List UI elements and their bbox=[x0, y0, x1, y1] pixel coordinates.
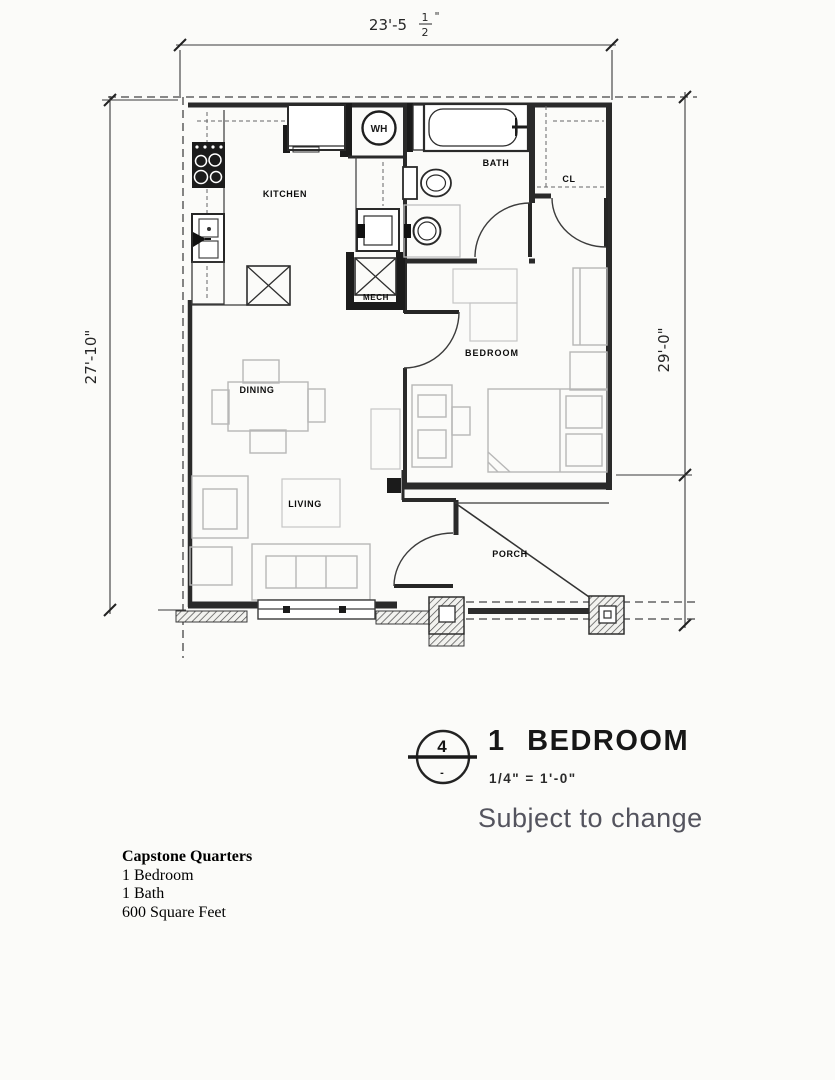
side-table bbox=[371, 409, 400, 469]
toilet bbox=[403, 167, 451, 199]
summary-block: Capstone Quarters 1 Bedroom 1 Bath 600 S… bbox=[122, 848, 252, 921]
room-label-living: LIVING bbox=[288, 499, 322, 509]
summary-line: 600 Square Feet bbox=[122, 904, 227, 921]
plan-title: 1 BEDROOM bbox=[488, 725, 689, 757]
dim-right-text: 29'-0" bbox=[655, 327, 673, 372]
dimension-left: 27'-10" bbox=[82, 94, 186, 616]
living: LIVING bbox=[190, 409, 453, 619]
bath-vanity bbox=[404, 205, 460, 257]
bathtub bbox=[424, 104, 528, 151]
porch-post bbox=[589, 596, 624, 634]
washer bbox=[357, 209, 399, 251]
stove bbox=[192, 142, 225, 188]
dining-chair bbox=[243, 360, 279, 383]
dining-chair bbox=[308, 389, 325, 422]
utility-niche: WH bbox=[357, 112, 399, 252]
dining: DINING bbox=[212, 360, 325, 453]
kitchen-sink bbox=[192, 214, 224, 262]
bedroom-nightstand bbox=[570, 352, 607, 390]
summary-line: 1 Bath bbox=[122, 885, 164, 902]
refrigerator bbox=[288, 105, 345, 152]
floor-plan-page: 23'-5 1 2 " 27'-10" 29'-0" bbox=[0, 0, 835, 1080]
bath-door bbox=[475, 203, 530, 257]
dim-top-suffix: " bbox=[434, 10, 439, 23]
exterior-walls bbox=[188, 103, 612, 607]
ottoman bbox=[190, 547, 232, 585]
room-label-closet: CL bbox=[562, 174, 575, 184]
plan-scale: 1/4" = 1'-0" bbox=[489, 771, 577, 786]
porch: PORCH bbox=[176, 503, 695, 646]
sheet-mark: - bbox=[440, 767, 444, 779]
disclaimer-text: Subject to change bbox=[478, 803, 703, 833]
closet-door bbox=[552, 198, 606, 247]
dim-top-frac-den: 2 bbox=[422, 26, 429, 39]
porch-post bbox=[429, 597, 464, 634]
bedroom-cabinet bbox=[453, 269, 517, 303]
room-label-dining: DINING bbox=[239, 385, 274, 395]
bed bbox=[488, 389, 607, 472]
dim-top-text: 23'-5 bbox=[369, 16, 407, 34]
dim-left-text: 27'-10" bbox=[82, 330, 100, 385]
sofa bbox=[252, 544, 370, 600]
room-label-kitchen: KITCHEN bbox=[263, 189, 307, 199]
mech-closet: MECH bbox=[355, 258, 396, 302]
bedroom-cabinet-2 bbox=[470, 303, 517, 341]
dim-top-frac-num: 1 bbox=[422, 11, 429, 24]
living-window bbox=[258, 600, 375, 619]
sheet-number: 4 bbox=[437, 737, 447, 756]
dining-chair bbox=[250, 430, 286, 453]
room-label-bedroom: BEDROOM bbox=[465, 348, 519, 358]
room-label-porch: PORCH bbox=[492, 549, 528, 559]
dimension-right: 29'-0" bbox=[616, 91, 692, 631]
floor-plan-drawing: 23'-5 1 2 " 27'-10" 29'-0" bbox=[0, 0, 835, 1080]
entry-door bbox=[394, 533, 453, 586]
room-label-mech: MECH bbox=[363, 293, 389, 302]
title-block: 4 - 1 BEDROOM 1/4" = 1'-0" Subject to ch… bbox=[408, 725, 703, 833]
bedroom-dresser bbox=[573, 268, 607, 345]
summary-line: 1 Bedroom bbox=[122, 867, 194, 884]
property-name: Capstone Quarters bbox=[122, 848, 252, 865]
dining-chair bbox=[212, 390, 229, 424]
dimension-top: 23'-5 1 2 " bbox=[174, 10, 618, 100]
kitchen-cabinet-x bbox=[247, 266, 290, 305]
bedroom-door bbox=[404, 312, 459, 368]
water-heater-label: WH bbox=[371, 124, 388, 135]
interior-walls bbox=[346, 103, 612, 535]
armchair bbox=[192, 476, 248, 538]
bedroom: BEDROOM bbox=[404, 268, 607, 472]
closet: CL bbox=[537, 106, 606, 247]
kitchen: KITCHEN bbox=[192, 105, 345, 305]
room-label-bath: BATH bbox=[483, 158, 510, 168]
bedroom-desk bbox=[412, 385, 470, 467]
